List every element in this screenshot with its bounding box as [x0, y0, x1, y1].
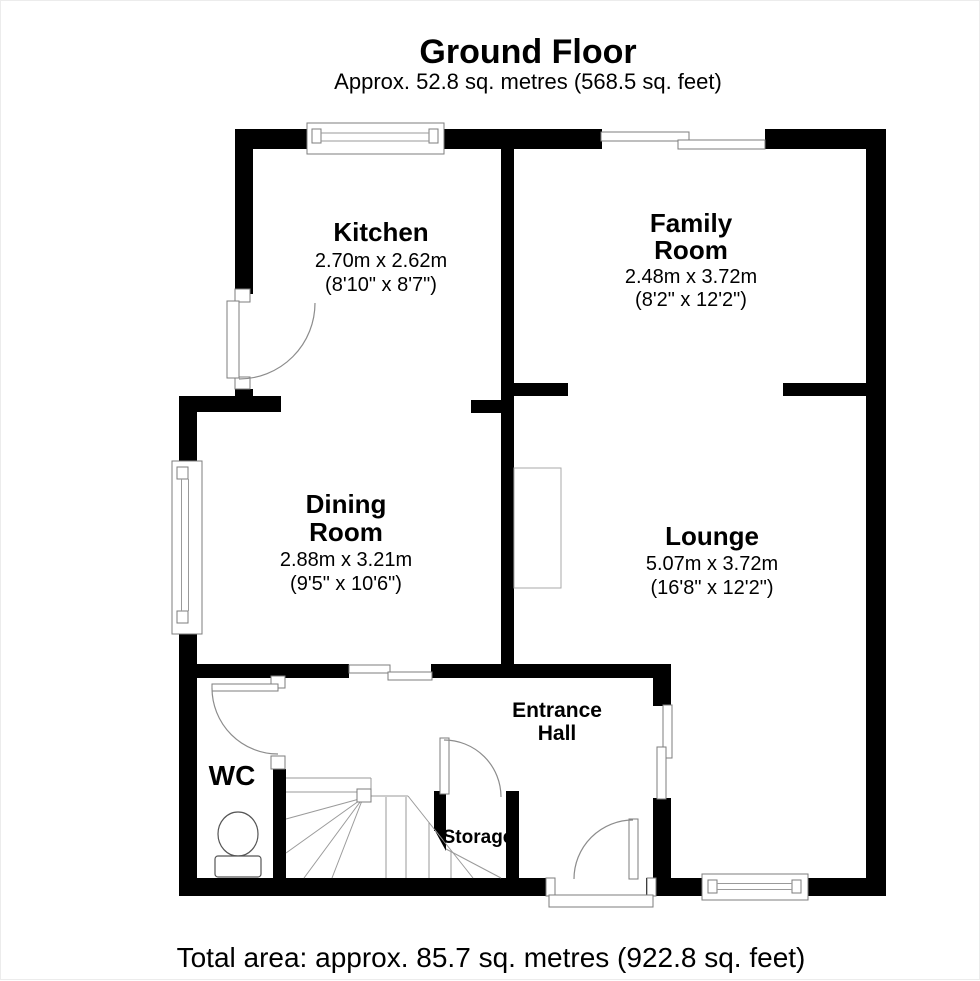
door-icon	[212, 676, 285, 769]
wall-segment	[471, 400, 503, 413]
wall-segment	[179, 631, 197, 896]
wall-segment	[273, 769, 286, 878]
room-metric-kitchen: 2.70m x 2.62m	[315, 250, 447, 272]
page-title: Ground Floor	[419, 33, 636, 71]
room-imperial-kitchen: (8'10" x 8'7")	[325, 274, 437, 296]
wall-segment	[653, 664, 671, 706]
wall-segment	[434, 791, 446, 831]
room-metric-family-room: 2.48m x 3.72m	[625, 266, 757, 288]
wall-segment	[179, 878, 554, 896]
room-imperial-lounge: (16'8" x 12'2")	[650, 577, 773, 599]
floorplan-drawing: Ground Floor Approx. 52.8 sq. metres (56…	[1, 1, 980, 981]
room-label-entrance-hall-1: Entrance	[512, 699, 602, 722]
floorplan-page: Ground Floor Approx. 52.8 sq. metres (56…	[0, 0, 980, 980]
room-metric-dining-room: 2.88m x 3.21m	[280, 549, 412, 571]
room-label-storage: Storage	[443, 827, 514, 848]
sliding-window-icon	[657, 705, 672, 799]
total-area-text: Total area: approx. 85.7 sq. metres (922…	[177, 942, 806, 973]
newel-post	[357, 789, 371, 802]
room-labels: Kitchen 2.70m x 2.62m (8'10" x 8'7") Fam…	[209, 208, 778, 848]
room-label-family-room-2: Room	[654, 235, 728, 265]
wall-segment	[179, 396, 197, 463]
front-door-icon	[546, 819, 656, 907]
wall-segment	[444, 129, 602, 149]
chimney-breast	[514, 468, 561, 588]
wall-segment	[653, 798, 671, 878]
room-label-wc: WC	[209, 760, 256, 791]
page-subtitle: Approx. 52.8 sq. metres (568.5 sq. feet)	[334, 69, 722, 94]
room-label-dining-room-1: Dining	[306, 489, 387, 519]
wall-segment	[866, 129, 886, 896]
wall-segment	[783, 383, 866, 396]
wall-segment	[501, 149, 514, 676]
room-imperial-dining-room: (9'5" x 10'6")	[290, 573, 402, 595]
room-label-family-room-1: Family	[650, 208, 733, 238]
room-imperial-family-room: (8'2" x 12'2")	[635, 289, 747, 311]
sliding-door-icon	[349, 665, 432, 680]
wall-segment	[808, 878, 886, 896]
wall-segment	[235, 129, 253, 294]
sliding-window-icon	[601, 132, 765, 149]
wall-segment	[431, 664, 671, 678]
window-icon	[307, 123, 444, 154]
door-icon	[440, 738, 501, 797]
room-label-entrance-hall-2: Hall	[538, 722, 577, 745]
wall-segment	[514, 383, 568, 396]
room-label-kitchen: Kitchen	[333, 217, 428, 247]
room-metric-lounge: 5.07m x 3.72m	[646, 553, 778, 575]
window-icon	[172, 461, 202, 634]
door-icon	[227, 289, 315, 389]
room-label-dining-room-2: Room	[309, 517, 383, 547]
toilet-icon	[215, 812, 261, 877]
window-icon	[702, 874, 808, 900]
room-label-lounge: Lounge	[665, 521, 759, 551]
